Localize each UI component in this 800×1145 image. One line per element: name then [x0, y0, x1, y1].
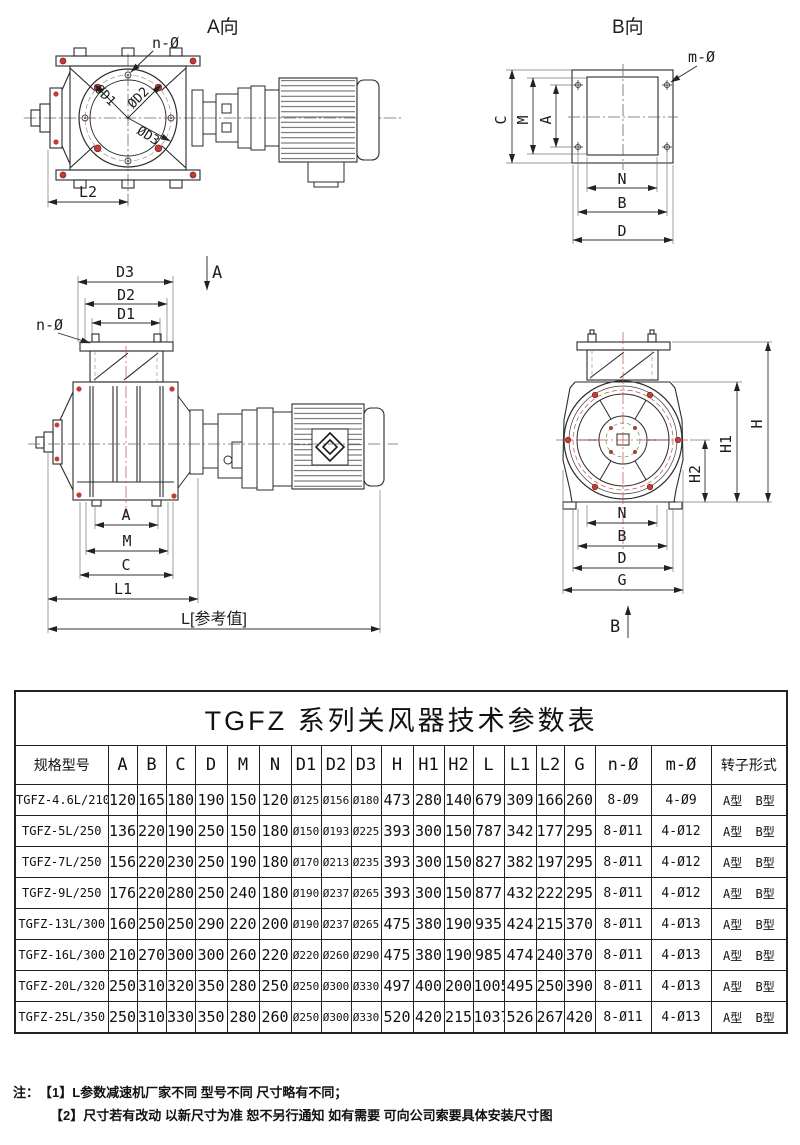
dim-label-h1: H1 [717, 435, 735, 453]
value-cell: 160 [108, 909, 137, 940]
model-cell: TGFZ-4.6L/210 [15, 785, 108, 816]
dim-label-d2: D2 [117, 286, 135, 304]
notes-prefix: 注： [13, 1082, 39, 1105]
value-cell: 935 [473, 909, 504, 940]
column-header-10: H [381, 746, 413, 785]
value-cell: 222 [536, 878, 564, 909]
technical-drawings: A向 [0, 0, 800, 685]
value-cell: 380 [413, 940, 444, 971]
column-header-8: D2 [321, 746, 351, 785]
parameters-section: TGFZ 系列关风器技术参数表 规格型号ABCDMND1D2D3HH1H2LL1… [14, 690, 786, 1034]
value-cell: 8-Ø11 [595, 940, 651, 971]
value-cell: Ø193 [321, 816, 351, 847]
value-cell: 300 [413, 847, 444, 878]
note-line-2: 【2】尺寸若有改动 以新尺寸为准 恕不另行通知 如有需要 可向公司索要具体安装尺… [13, 1105, 773, 1128]
value-cell: 250 [137, 909, 166, 940]
value-cell: 473 [381, 785, 413, 816]
value-cell: Ø237 [321, 878, 351, 909]
value-cell: 420 [413, 1002, 444, 1034]
value-cell: Ø125 [291, 785, 321, 816]
value-cell: Ø213 [321, 847, 351, 878]
table-row: TGFZ-9L/250176220280250240180Ø190Ø237Ø26… [15, 878, 787, 909]
value-cell: Ø156 [321, 785, 351, 816]
value-cell: 300 [413, 878, 444, 909]
dim-label-l1: L1 [114, 580, 132, 598]
value-cell: 200 [444, 971, 473, 1002]
column-header-14: L1 [504, 746, 536, 785]
value-cell: 180 [259, 816, 291, 847]
hole-count-label-a: n-Ø [152, 34, 179, 52]
notes: 注： 【1】L参数减速机厂家不同 型号不同 尺寸略有不同； 【2】尺寸若有改动 … [13, 1082, 773, 1128]
dim-label-b-end: B [617, 527, 626, 545]
value-cell: 432 [504, 878, 536, 909]
value-cell: 300 [413, 816, 444, 847]
value-cell: Ø330 [351, 971, 381, 1002]
value-cell: 215 [536, 909, 564, 940]
value-cell: Ø300 [321, 1002, 351, 1034]
value-cell: A型 B型 [711, 785, 787, 816]
value-cell: 250 [108, 1002, 137, 1034]
model-cell: TGFZ-20L/320 [15, 971, 108, 1002]
value-cell: Ø330 [351, 1002, 381, 1034]
table-row: TGFZ-7L/250156220230250190180Ø170Ø213Ø23… [15, 847, 787, 878]
value-cell: 4-Ø12 [651, 878, 711, 909]
dim-label-d-end: D [617, 549, 626, 567]
column-header-16: G [564, 746, 595, 785]
value-cell: 280 [227, 971, 259, 1002]
table-row: TGFZ-16L/300210270300300260220Ø220Ø260Ø2… [15, 940, 787, 971]
value-cell: 250 [108, 971, 137, 1002]
view-a-title: A向 [207, 16, 239, 38]
value-cell: 240 [227, 878, 259, 909]
dim-label-l2: L2 [79, 183, 97, 201]
model-cell: TGFZ-13L/300 [15, 909, 108, 940]
view-a-drawing: A向 [24, 16, 402, 208]
value-cell: 150 [227, 785, 259, 816]
value-cell: 380 [413, 909, 444, 940]
dim-label-m-b: M [514, 115, 532, 124]
table-row: TGFZ-25L/350250310330350280260Ø250Ø300Ø3… [15, 1002, 787, 1034]
value-cell: 260 [227, 940, 259, 971]
value-cell: 393 [381, 878, 413, 909]
value-cell: A型 B型 [711, 1002, 787, 1034]
value-cell: 166 [536, 785, 564, 816]
value-cell: 295 [564, 878, 595, 909]
value-cell: 330 [166, 1002, 195, 1034]
value-cell: 165 [137, 785, 166, 816]
value-cell: 220 [137, 878, 166, 909]
parameters-table: TGFZ 系列关风器技术参数表 规格型号ABCDMND1D2D3HH1H2LL1… [14, 690, 788, 1034]
value-cell: 1005 [473, 971, 504, 1002]
value-cell: Ø265 [351, 909, 381, 940]
value-cell: 8-Ø11 [595, 847, 651, 878]
value-cell: 497 [381, 971, 413, 1002]
value-cell: 393 [381, 816, 413, 847]
column-header-18: m-Ø [651, 746, 711, 785]
value-cell: 180 [259, 878, 291, 909]
value-cell: 250 [195, 878, 227, 909]
view-b-drawing: B向 m-Ø C M A [492, 16, 715, 244]
value-cell: 1037 [473, 1002, 504, 1034]
value-cell: Ø300 [321, 971, 351, 1002]
value-cell: 250 [259, 971, 291, 1002]
value-cell: A型 B型 [711, 816, 787, 847]
value-cell: 8-Ø11 [595, 971, 651, 1002]
value-cell: 4-Ø13 [651, 971, 711, 1002]
value-cell: 420 [564, 1002, 595, 1034]
dim-label-c-side: C [121, 556, 130, 574]
column-header-19: 转子形式 [711, 746, 787, 785]
value-cell: Ø190 [291, 878, 321, 909]
value-cell: 474 [504, 940, 536, 971]
value-cell: 150 [444, 878, 473, 909]
value-cell: 827 [473, 847, 504, 878]
view-b-title: B向 [612, 16, 644, 38]
value-cell: 120 [108, 785, 137, 816]
dim-label-m-side: M [122, 532, 131, 550]
value-cell: 320 [166, 971, 195, 1002]
value-cell: 342 [504, 816, 536, 847]
dim-label-g: G [617, 571, 626, 589]
value-cell: 140 [444, 785, 473, 816]
value-cell: 370 [564, 909, 595, 940]
value-cell: A型 B型 [711, 940, 787, 971]
value-cell: 280 [413, 785, 444, 816]
column-header-5: M [227, 746, 259, 785]
model-cell: TGFZ-7L/250 [15, 847, 108, 878]
value-cell: 787 [473, 816, 504, 847]
value-cell: 250 [166, 909, 195, 940]
value-cell: Ø190 [291, 909, 321, 940]
value-cell: 877 [473, 878, 504, 909]
column-header-11: H1 [413, 746, 444, 785]
value-cell: 176 [108, 878, 137, 909]
value-cell: 424 [504, 909, 536, 940]
value-cell: 197 [536, 847, 564, 878]
table-header-row: 规格型号ABCDMND1D2D3HH1H2LL1L2Gn-Øm-Ø转子形式 [15, 746, 787, 785]
table-row: TGFZ-13L/300160250250290220200Ø190Ø237Ø2… [15, 909, 787, 940]
column-header-1: A [108, 746, 137, 785]
value-cell: Ø235 [351, 847, 381, 878]
value-cell: 270 [137, 940, 166, 971]
dim-label-l-ref: L[参考值] [181, 610, 247, 628]
value-cell: 400 [413, 971, 444, 1002]
value-cell: 177 [536, 816, 564, 847]
hole-count-label-b: m-Ø [688, 48, 715, 66]
value-cell: 120 [259, 785, 291, 816]
value-cell: 495 [504, 971, 536, 1002]
value-cell: 310 [137, 971, 166, 1002]
value-cell: 350 [195, 971, 227, 1002]
column-header-4: D [195, 746, 227, 785]
value-cell: 220 [137, 816, 166, 847]
value-cell: 190 [444, 940, 473, 971]
value-cell: 8-Ø11 [595, 909, 651, 940]
value-cell: A型 B型 [711, 971, 787, 1002]
value-cell: Ø290 [351, 940, 381, 971]
value-cell: 150 [227, 816, 259, 847]
value-cell: 260 [259, 1002, 291, 1034]
model-cell: TGFZ-5L/250 [15, 816, 108, 847]
dim-label-n-b: N [617, 170, 626, 188]
dim-label-h: H [748, 419, 766, 428]
column-header-6: N [259, 746, 291, 785]
spec-sheet: A向 [0, 0, 800, 1145]
value-cell: 393 [381, 847, 413, 878]
hole-count-label-side: n-Ø [36, 316, 63, 334]
value-cell: 350 [195, 1002, 227, 1034]
value-cell: 526 [504, 1002, 536, 1034]
value-cell: Ø250 [291, 1002, 321, 1034]
table-row: TGFZ-4.6L/210120165180190150120Ø125Ø156Ø… [15, 785, 787, 816]
value-cell: 475 [381, 909, 413, 940]
model-cell: TGFZ-25L/350 [15, 1002, 108, 1034]
model-cell: TGFZ-9L/250 [15, 878, 108, 909]
value-cell: 190 [227, 847, 259, 878]
dim-label-c-b: C [492, 115, 510, 124]
value-cell: 8-Ø11 [595, 878, 651, 909]
value-cell: 180 [166, 785, 195, 816]
value-cell: Ø237 [321, 909, 351, 940]
value-cell: 250 [195, 816, 227, 847]
table-body: TGFZ-4.6L/210120165180190150120Ø125Ø156Ø… [15, 785, 787, 1034]
column-header-9: D3 [351, 746, 381, 785]
section-b-label: B [610, 617, 620, 637]
model-cell: TGFZ-16L/300 [15, 940, 108, 971]
value-cell: 210 [108, 940, 137, 971]
value-cell: 150 [444, 816, 473, 847]
value-cell: 679 [473, 785, 504, 816]
value-cell: A型 B型 [711, 909, 787, 940]
column-header-2: B [137, 746, 166, 785]
value-cell: 475 [381, 940, 413, 971]
value-cell: Ø150 [291, 816, 321, 847]
dim-label-d-b: D [617, 222, 626, 240]
value-cell: 390 [564, 971, 595, 1002]
dim-label-a-b: A [537, 115, 555, 124]
value-cell: Ø260 [321, 940, 351, 971]
dim-label-d1: D1 [117, 305, 135, 323]
value-cell: 200 [259, 909, 291, 940]
value-cell: 4-Ø12 [651, 847, 711, 878]
column-header-0: 规格型号 [15, 746, 108, 785]
value-cell: 8-Ø11 [595, 816, 651, 847]
value-cell: 215 [444, 1002, 473, 1034]
value-cell: 8-Ø9 [595, 785, 651, 816]
value-cell: Ø225 [351, 816, 381, 847]
value-cell: 240 [536, 940, 564, 971]
value-cell: 190 [444, 909, 473, 940]
value-cell: Ø180 [351, 785, 381, 816]
value-cell: 520 [381, 1002, 413, 1034]
value-cell: 8-Ø11 [595, 1002, 651, 1034]
value-cell: 250 [195, 847, 227, 878]
value-cell: 150 [444, 847, 473, 878]
table-row: TGFZ-5L/250136220190250150180Ø150Ø193Ø22… [15, 816, 787, 847]
value-cell: 382 [504, 847, 536, 878]
section-a-label: A [212, 263, 222, 283]
dim-label-d3: D3 [116, 263, 134, 281]
value-cell: 4-Ø13 [651, 909, 711, 940]
value-cell: 300 [195, 940, 227, 971]
value-cell: 156 [108, 847, 137, 878]
value-cell: 190 [195, 785, 227, 816]
value-cell: 267 [536, 1002, 564, 1034]
value-cell: 4-Ø9 [651, 785, 711, 816]
value-cell: 220 [137, 847, 166, 878]
table-row: TGFZ-20L/320250310320350280250Ø250Ø300Ø3… [15, 971, 787, 1002]
note-line-1: 【1】L参数减速机厂家不同 型号不同 尺寸略有不同； [39, 1082, 347, 1105]
value-cell: 136 [108, 816, 137, 847]
value-cell: 4-Ø13 [651, 1002, 711, 1034]
dim-label-h2: H2 [686, 465, 704, 483]
value-cell: 295 [564, 847, 595, 878]
value-cell: 4-Ø13 [651, 940, 711, 971]
dim-label-n-end: N [617, 504, 626, 522]
value-cell: Ø220 [291, 940, 321, 971]
value-cell: 280 [227, 1002, 259, 1034]
value-cell: 4-Ø12 [651, 816, 711, 847]
value-cell: 290 [195, 909, 227, 940]
value-cell: 370 [564, 940, 595, 971]
value-cell: 310 [137, 1002, 166, 1034]
motor-side [292, 404, 384, 489]
side-view-drawing: A D3 D2 D1 n-Ø [28, 256, 398, 633]
dim-label-b-b: B [617, 194, 626, 212]
value-cell: 180 [259, 847, 291, 878]
column-header-17: n-Ø [595, 746, 651, 785]
value-cell: 230 [166, 847, 195, 878]
value-cell: Ø265 [351, 878, 381, 909]
value-cell: A型 B型 [711, 847, 787, 878]
dim-label-a-side: A [121, 506, 130, 524]
column-header-13: L [473, 746, 504, 785]
value-cell: 300 [166, 940, 195, 971]
end-view-drawing: H2 H1 H N B D G B [556, 330, 772, 638]
column-header-3: C [166, 746, 195, 785]
value-cell: 280 [166, 878, 195, 909]
table-title: TGFZ 系列关风器技术参数表 [15, 691, 787, 746]
column-header-15: L2 [536, 746, 564, 785]
motor-a [279, 78, 379, 187]
column-header-7: D1 [291, 746, 321, 785]
value-cell: 295 [564, 816, 595, 847]
value-cell: 190 [166, 816, 195, 847]
value-cell: 260 [564, 785, 595, 816]
value-cell: A型 B型 [711, 878, 787, 909]
value-cell: Ø250 [291, 971, 321, 1002]
column-header-12: H2 [444, 746, 473, 785]
value-cell: 309 [504, 785, 536, 816]
value-cell: Ø170 [291, 847, 321, 878]
dim-label-d2: ØD2 [125, 85, 152, 112]
value-cell: 250 [536, 971, 564, 1002]
value-cell: 985 [473, 940, 504, 971]
value-cell: 220 [227, 909, 259, 940]
value-cell: 220 [259, 940, 291, 971]
